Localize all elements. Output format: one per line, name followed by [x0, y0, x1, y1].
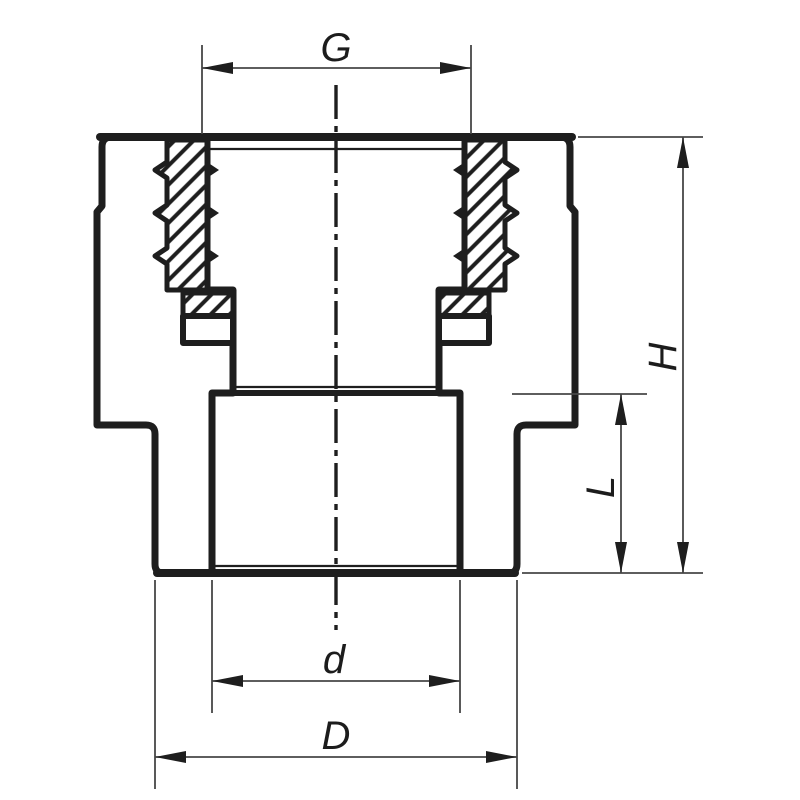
- dimension-L: L: [512, 394, 647, 573]
- drawing-canvas: G H L d D: [0, 0, 800, 800]
- label-thread-size: G: [320, 26, 351, 70]
- body-section-right: [439, 137, 575, 573]
- insert-flange-left: [183, 293, 233, 316]
- relief-groove-right: [439, 316, 489, 343]
- threaded-insert-right: [465, 140, 517, 290]
- label-inner-diameter: d: [323, 638, 347, 682]
- fitting-section-drawing: G H L d D: [0, 0, 800, 800]
- insert-flange-right: [439, 293, 489, 316]
- relief-groove-left: [183, 316, 233, 343]
- body-section-left: [97, 137, 233, 573]
- dimension-D: D: [155, 580, 517, 789]
- label-overall-height: H: [641, 342, 685, 371]
- label-socket-depth: L: [579, 476, 623, 498]
- label-outer-diameter: D: [322, 714, 351, 758]
- threaded-insert-left: [155, 140, 207, 290]
- dimension-H: H: [522, 137, 703, 573]
